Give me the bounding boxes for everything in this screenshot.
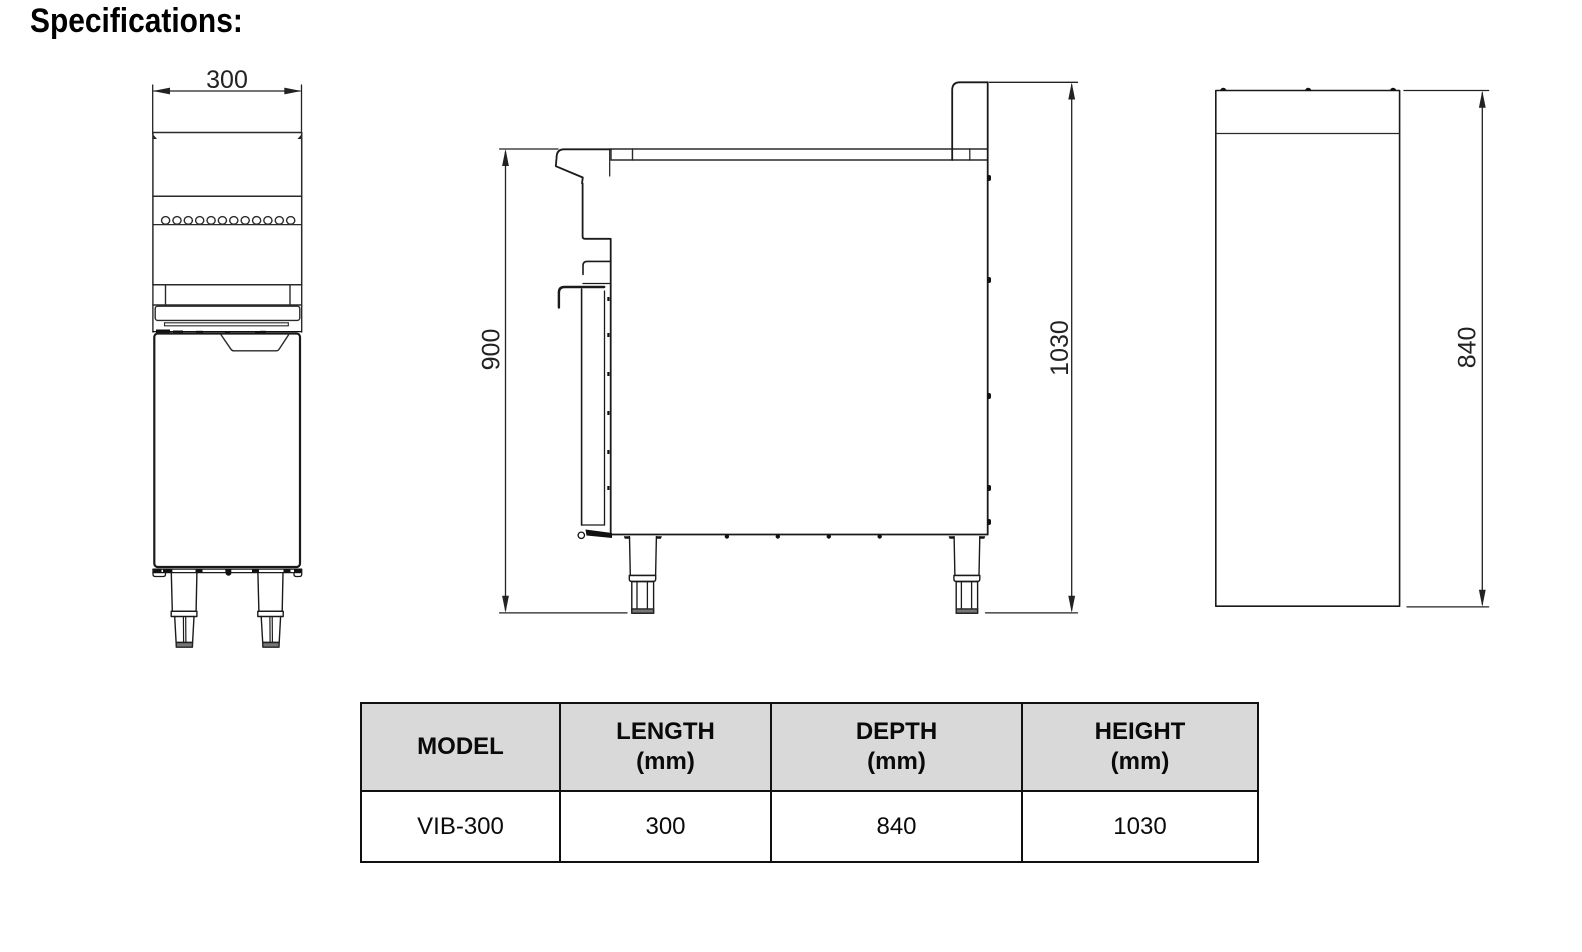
svg-text:900: 900: [478, 329, 506, 371]
svg-text:300: 300: [206, 66, 248, 94]
svg-text:1030: 1030: [1046, 320, 1074, 376]
svg-text:840: 840: [1453, 327, 1481, 369]
